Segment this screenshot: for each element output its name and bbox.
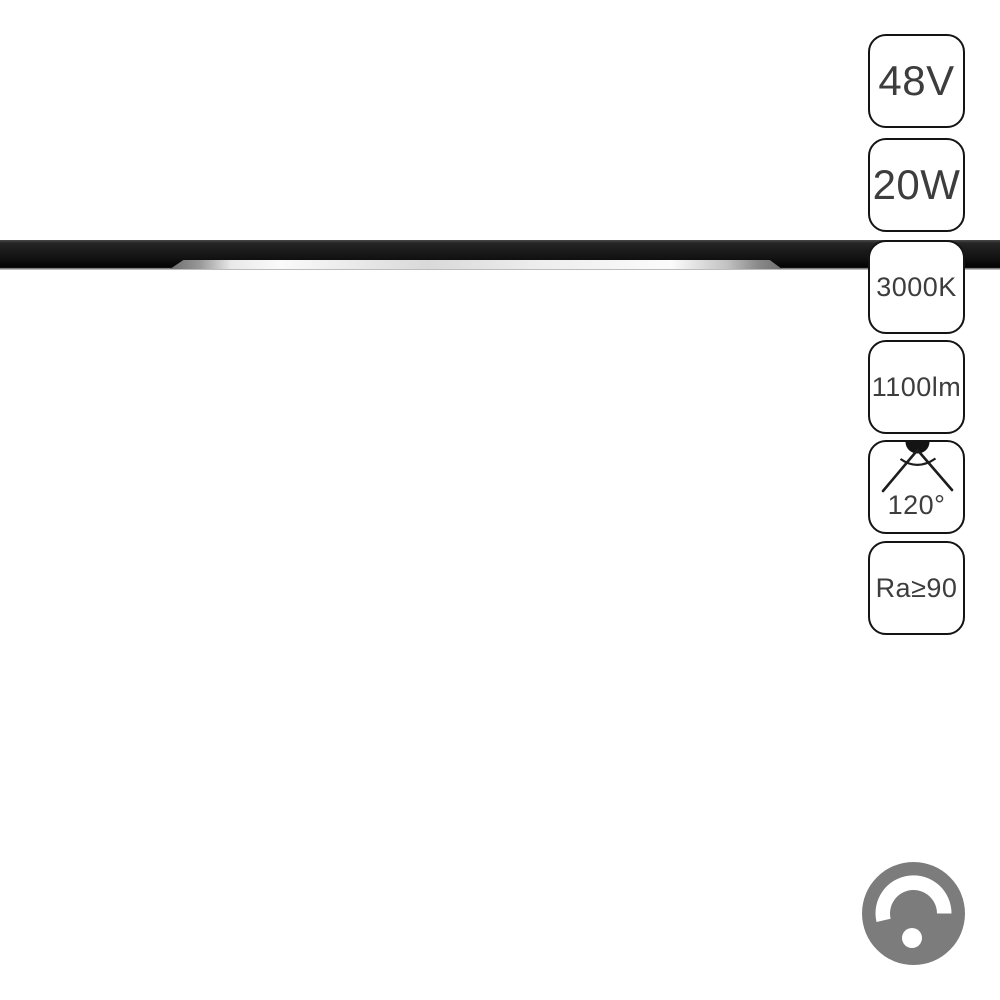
spec-badge-power: 20W: [868, 138, 965, 232]
dimmer-knob-icon: [858, 858, 969, 969]
badge-label: 3000K: [876, 272, 957, 303]
badge-label: 1100lm: [872, 372, 962, 403]
spec-badge-color-temperature: 3000K: [868, 240, 965, 334]
badge-label: Ra≥90: [876, 573, 958, 604]
beam-angle-icon: [870, 441, 967, 499]
spec-badge-voltage: 48V: [868, 34, 965, 128]
led-diffuser-strip: [170, 260, 782, 269]
spec-badge-beam-angle: 120°: [868, 440, 965, 534]
badge-label: 20W: [873, 161, 961, 209]
badge-label: 48V: [878, 57, 954, 105]
product-image: 48V 20W 3000K 1100lm 120° Ra≥90: [0, 0, 1000, 1000]
track-rail: [0, 240, 1000, 270]
spec-badge-color-rendering: Ra≥90: [868, 541, 965, 635]
spec-badge-luminous-flux: 1100lm: [868, 340, 965, 434]
